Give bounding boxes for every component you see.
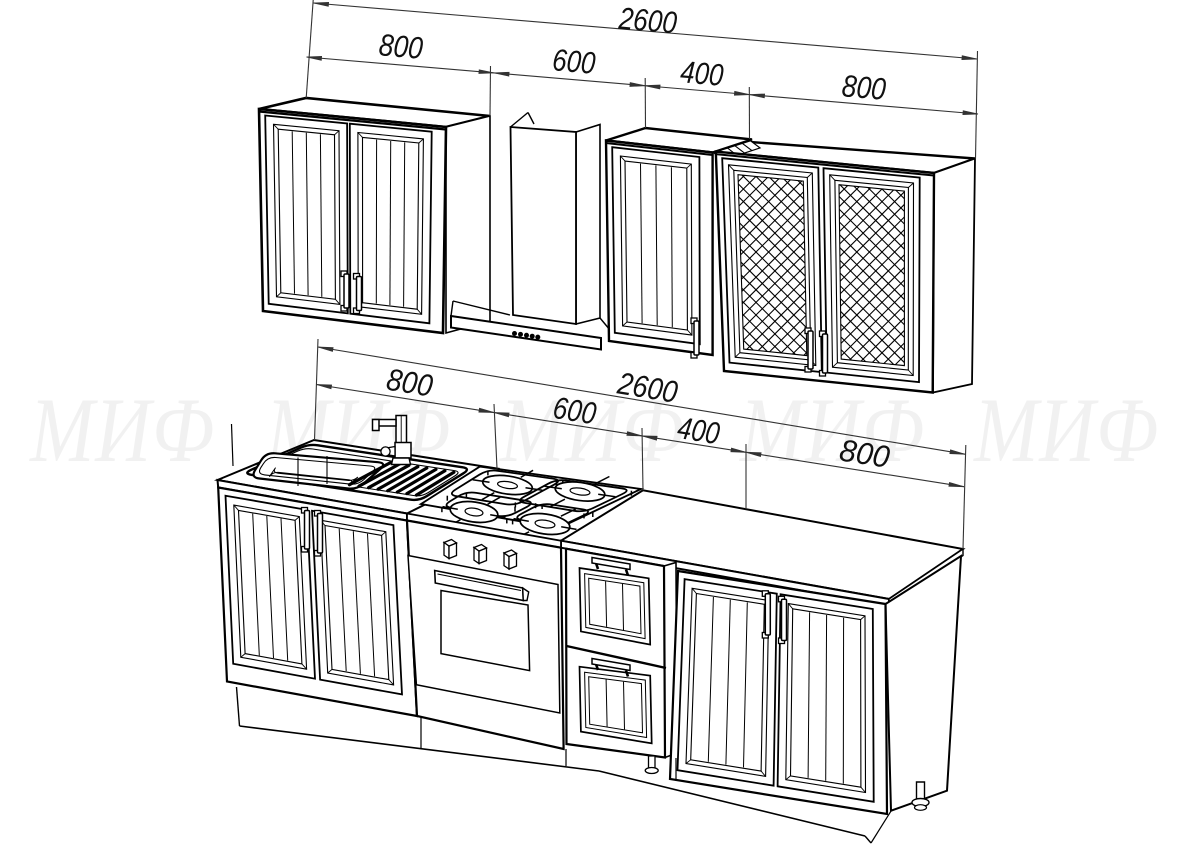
- svg-text:МИФ: МИФ: [973, 380, 1159, 482]
- svg-text:800: 800: [377, 27, 424, 66]
- svg-text:МИФ: МИФ: [29, 380, 215, 482]
- svg-text:2600: 2600: [617, 1, 679, 41]
- svg-text:800: 800: [840, 68, 887, 107]
- svg-text:800: 800: [384, 362, 435, 404]
- svg-text:600: 600: [551, 390, 599, 431]
- svg-text:400: 400: [675, 410, 722, 451]
- svg-text:600: 600: [551, 42, 597, 81]
- svg-text:400: 400: [679, 54, 725, 93]
